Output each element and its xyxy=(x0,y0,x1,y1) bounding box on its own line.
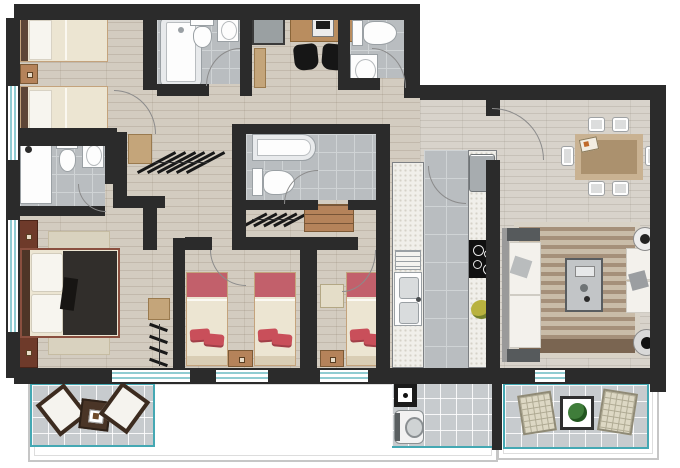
wicker-chair xyxy=(597,389,638,436)
wall-bath3-top xyxy=(242,124,388,134)
wall-kids2-right xyxy=(376,124,390,378)
wall-kids1-top-a xyxy=(185,237,212,250)
laptop xyxy=(312,18,334,37)
window-left-lower xyxy=(8,220,18,332)
sink-basin xyxy=(399,302,419,324)
small-tub xyxy=(252,134,316,161)
wood-shelf xyxy=(254,48,266,88)
headboard xyxy=(21,87,28,131)
desk-chair-1 xyxy=(293,43,320,71)
sofa-back xyxy=(502,228,509,362)
wall-closet-left xyxy=(113,132,127,204)
shower-head xyxy=(25,146,32,153)
washing-machine xyxy=(394,410,424,444)
dining-chair xyxy=(588,117,605,132)
pillow xyxy=(29,20,52,60)
wall-top xyxy=(14,4,420,20)
wall-hall-stub xyxy=(143,196,157,250)
coffee-table xyxy=(565,258,603,312)
basin xyxy=(221,21,237,40)
wall-bath3-bottom-b xyxy=(348,200,376,210)
closet-shelf xyxy=(148,298,170,320)
dining-chair xyxy=(588,181,605,196)
serving-tray xyxy=(579,136,599,152)
headboard xyxy=(21,17,28,61)
master-nightstand-2 xyxy=(18,336,38,368)
single-bed xyxy=(254,272,296,366)
wall-closet-bottom xyxy=(113,196,165,208)
wall-bedroom1-right xyxy=(143,14,157,90)
wall-kids-divider xyxy=(300,237,317,370)
kitchen-sink xyxy=(394,272,422,326)
patio-table xyxy=(560,396,594,430)
closet-shelf xyxy=(128,134,152,164)
pillow xyxy=(31,294,63,333)
clothes-rack xyxy=(147,322,171,368)
toilet-tank xyxy=(252,168,263,196)
wall-bath1-right xyxy=(240,14,252,96)
twin-bed-1 xyxy=(20,16,108,62)
wall-top-right xyxy=(420,85,666,100)
toilet-bowl xyxy=(59,149,76,172)
side-table xyxy=(320,284,344,308)
wall-bath1-bottom xyxy=(157,84,209,96)
glass-door-master-balcony xyxy=(112,370,190,382)
bathtub-drain xyxy=(178,27,184,33)
wall-kids1-top-b xyxy=(246,237,300,250)
window-left-upper xyxy=(8,86,18,160)
dining-chair xyxy=(561,146,574,166)
nightstand xyxy=(228,350,253,367)
clothes-rack xyxy=(152,136,210,190)
armrest xyxy=(507,228,540,241)
wicker-chair xyxy=(517,391,557,436)
wall-kids2-top xyxy=(317,237,358,250)
wall-guest-bath-right xyxy=(404,4,420,98)
duvet-fold xyxy=(65,88,67,130)
dish-rack xyxy=(395,250,421,270)
sofa-left xyxy=(502,228,540,362)
nightstand xyxy=(20,64,38,84)
toilet-bowl xyxy=(193,26,212,48)
twin-bed-2 xyxy=(20,86,108,132)
single-bed xyxy=(186,272,228,366)
nightstand xyxy=(320,350,344,367)
laptop-screen xyxy=(316,21,330,29)
dining-table xyxy=(575,134,643,180)
master-bed xyxy=(20,248,120,338)
sink-basin xyxy=(399,277,419,299)
wall-ensuite-top xyxy=(14,128,117,138)
wall-right xyxy=(650,100,666,392)
pillow xyxy=(31,253,63,292)
toilet-tank xyxy=(352,20,363,46)
faucet xyxy=(416,297,421,302)
window-kids2 xyxy=(320,370,368,382)
armrest xyxy=(507,349,540,362)
duvet-fold xyxy=(65,18,67,60)
basin xyxy=(86,145,102,166)
floor-plan xyxy=(0,0,680,468)
wall-bottom-right xyxy=(497,368,666,384)
window-kids1 xyxy=(216,370,268,382)
wall-balcony-divider xyxy=(492,378,502,450)
shower xyxy=(20,140,52,204)
laundry-sink xyxy=(394,384,417,407)
dining-chair xyxy=(612,181,629,196)
wall-master-kids xyxy=(173,238,185,370)
wall-bath3-left xyxy=(232,124,246,250)
dining-chair xyxy=(612,117,629,132)
headboard xyxy=(22,250,30,336)
toilet-bowl xyxy=(363,21,397,45)
pillow xyxy=(29,90,52,130)
seat-cushion xyxy=(509,295,541,348)
glass-door-living-balcony xyxy=(535,370,565,382)
wall-kitchen-living xyxy=(486,160,500,380)
